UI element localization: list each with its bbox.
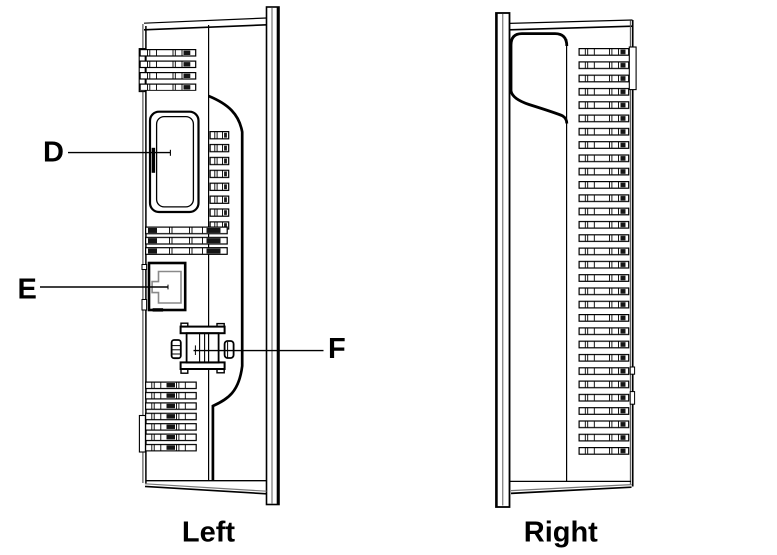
vent-slots-middle-band bbox=[145, 227, 228, 256]
callout-e-label: E bbox=[18, 274, 37, 306]
left-side-view: D E F Left bbox=[18, 7, 346, 549]
right-side-view: Right bbox=[496, 13, 636, 549]
vent-slots-column bbox=[210, 131, 230, 230]
right-view-caption: Right bbox=[524, 517, 598, 549]
front-bezel-edge bbox=[267, 7, 280, 505]
usb-connector bbox=[172, 323, 234, 373]
callout-f-label: F bbox=[328, 333, 346, 365]
diagram-page: D E F Left bbox=[0, 0, 777, 555]
vent-slots-top-left bbox=[139, 49, 196, 92]
front-bezel-profile-curve bbox=[511, 34, 567, 124]
vent-slots-bottom-left bbox=[139, 382, 197, 453]
device-side-views-diagram: D E F Left bbox=[0, 0, 777, 555]
left-view-caption: Left bbox=[182, 517, 236, 549]
front-bezel-edge bbox=[496, 13, 510, 507]
card-slot-cover bbox=[150, 112, 199, 212]
vent-slots-right-panel bbox=[579, 47, 637, 455]
callout-d-label: D bbox=[43, 137, 64, 169]
